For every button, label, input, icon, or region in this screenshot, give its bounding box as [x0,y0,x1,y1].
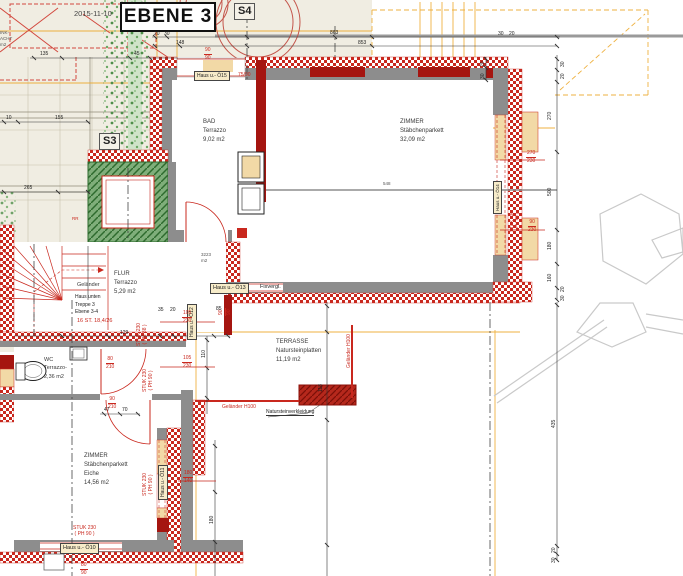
dim-value: 30 [560,61,566,67]
dim-value: 20 [509,31,515,37]
dim-value: 118 [318,384,324,392]
dim-value: 85 [216,306,222,312]
context-fragment: RR [72,216,79,221]
dim-numerator: 105 [182,310,192,318]
railing-label-vertical: Geländer H100 [346,334,352,368]
dim-value: 160 [547,274,553,282]
window-label-o11: Haus u.- Ö11 [158,465,168,500]
stairs-railing-label: Geländer [77,281,100,289]
room-area: 5,29 m2 [114,288,137,297]
window-dim-flur2: 105 230 [182,355,192,369]
dim-value: 20 [560,286,566,292]
dim-value: 20 [560,73,566,79]
section-marker-s3: S3 [99,133,120,150]
room-finish: Stäbchenparkett [84,461,128,470]
stuk-note-90a: STUK 230 ( PH 90 ) [142,369,154,392]
room-finish: Terrazzo- [44,364,67,372]
stuk-line: ( PH 90 ) [148,473,154,496]
dim-numerator: 80 [80,562,88,570]
room-material: Eiche [84,470,128,479]
dim-denominator: 90 [80,570,88,576]
dim-value: 265 [24,185,32,191]
room-finish: Terrazzo [203,127,226,136]
room-label-zimmer-gross: ZIMMER Stäbchenparkett 32,09 m2 [400,118,444,145]
dim-denominator: 230 [182,318,192,325]
small-area-unit: m2 [201,258,211,264]
room-area: 14,56 m2 [84,479,128,488]
small-area-note: 3223 m2 [201,252,211,264]
dim-value: 70 [122,407,128,413]
dim-numerator: 90 [528,219,536,227]
room-name: ZIMMER [400,118,444,127]
room-finish: Terrazzo [114,279,137,288]
dim-numerator: 105 [182,355,192,363]
room-label-bad: BAD Terrazzo 9,02 m2 [203,118,226,145]
stairs-going: 18,4/26 [94,318,112,324]
stuk-line: ( PH 90 ) [73,531,96,537]
dim-value: 180 [209,516,215,524]
dim-value: 10 [6,115,12,121]
floorplan-viewport: 2015-11-10 EBENE 3 S4 S3 BAD Terrazzo 9,… [0,0,683,576]
window-label-o13-suffix: Fixvergl. [260,284,281,290]
dim-value: 47 [104,407,110,413]
stairs-note-line: Treppe 3 [75,302,101,310]
stairs-count: 16 ST. [77,318,93,324]
dim-value: 30 [164,31,170,37]
room-name: TERRASSE [276,338,321,347]
stuk-note-90c: STUK 230 ( PH 90 ) [73,525,96,537]
context-fragment: INK- [0,30,9,35]
section-marker-s4: S4 [234,3,255,20]
plan-date: 2015-11-10 [74,9,112,18]
window-dim-zimmer: 180 140 [183,470,193,484]
dim-pair-bottom: 80 90 [80,562,88,576]
dim-value: 129 [120,330,128,336]
dim-value: 853 [358,40,366,46]
room-area: 9,02 m2 [203,136,226,145]
dim-denominator: 230 [528,227,536,234]
dim-pair-top: 90 90 [204,47,212,61]
dim-value: 30 [551,557,557,563]
stuk-note-88: STUK 230 ( PH 88 ) [136,323,148,346]
dim-denominator: 90 [226,308,233,316]
dim-value: 180 [547,242,553,250]
dim-value: 20 [551,547,557,553]
room-label-flur: FLUR Terrazzo 5,29 m2 [114,270,137,297]
dim-denominator: 230 [182,363,192,370]
stuk-note-90b: STUK 230 ( PH 90 ) [142,473,154,496]
dim-numerator: 80 [106,356,114,364]
dim-value: 148 [176,40,184,46]
room-area: 2,36 m2 [44,373,67,381]
dim-value: 45 [134,51,140,57]
dim-value: 863 [330,30,338,36]
railing-label-horizontal: Geländer H100 [222,404,256,410]
dim-value: 435 [551,420,557,428]
dim-value: 155 [55,115,63,121]
room-label-zimmer-klein: ZIMMER Stäbchenparkett Eiche 14,56 m2 [84,452,128,488]
dim-numerator: 90 [204,47,212,55]
room-area: 32,09 m2 [400,136,444,145]
room-label-wc: WC Terrazzo- 2,36 m2 [44,356,67,381]
dim-numerator: 90 [108,396,116,404]
stuk-line: ( PH 90 ) [148,369,154,392]
stuk-line: ( PH 88 ) [142,323,148,346]
window-label-o13: Haus u.- Ö13 [210,283,249,294]
door-dim-wc: 80 210 [106,356,114,370]
dim-numerator: 270 [526,150,536,158]
window-dim-right1: 270 230 [526,150,536,164]
window-label-o10: Haus u.- Ö10 [60,543,99,554]
room-name: WC [44,356,67,364]
context-fragment: ACHT [0,36,12,41]
stairs-note-line: Haus unten [75,294,101,302]
floorplan-drawing [0,0,683,576]
stairs-note: Haus unten Treppe 3 Ebene 3-4 [75,294,101,317]
dim-value: 110 [201,350,207,358]
dim-value: 500 [547,188,553,196]
dim-value: 35 [158,307,164,313]
window-dim-right2: 90 230 [528,219,536,233]
cladding-label: Natursteinverkleidung [266,409,314,416]
elevator-shaft [88,150,176,242]
dim-denominator: 90 [204,55,212,62]
room-finish: Natursteinplatten [276,347,321,356]
room-name: BAD [203,118,226,127]
plan-title: EBENE 3 [120,2,216,32]
window-label-o15: Haus u.- Ö15 [194,71,230,81]
room-area: 11,19 m2 [276,356,321,365]
dim-numerator: 180 [183,470,193,478]
stairs-note-line: Ebene 3-4 [75,309,101,317]
room-name: FLUR [114,270,137,279]
small-area-value: 3223 [201,252,211,258]
stuk-note-88r: STUK 230 ( PH 88 ) [509,211,519,232]
dim-value: 20 [170,307,176,313]
dim-denominator: 140 [183,478,193,485]
dim-value: 135 [40,51,48,57]
dim-value: 30 [498,31,504,37]
room-finish: Stäbchenparkett [400,127,444,136]
dim-value: 548 [383,181,391,186]
dim-value: 270 [547,112,553,120]
context-fragment: m2 [0,42,6,47]
dim-value: 20 [480,61,486,67]
stuk-line: ( PH 88 ) [514,211,519,232]
window-dim-o15: 75/90 [238,72,251,78]
dim-denominator: 210 [106,364,114,371]
dim-denominator: 230 [526,158,536,165]
stairs-step-count: 16 ST. 18,4/26 [77,318,112,324]
dim-value: 30 [480,73,486,79]
room-label-terrasse: TERRASSE Natursteinplatten 11,19 m2 [276,338,321,365]
window-label-o14: Haus u.- Ö14 [493,181,502,214]
room-name: ZIMMER [84,452,128,461]
dim-value: 30 [560,295,566,301]
window-dim-flur1: 105 230 [182,310,192,324]
dim-value: 20 [154,31,160,37]
